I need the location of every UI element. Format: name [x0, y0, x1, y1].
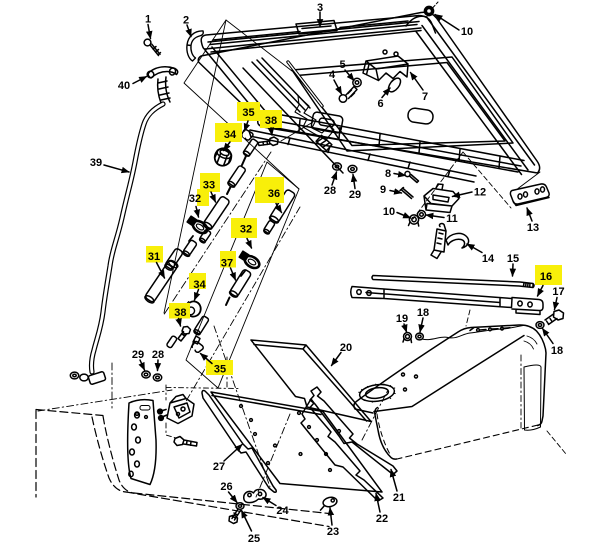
svg-text:36: 36 [268, 188, 280, 200]
svg-text:5: 5 [339, 59, 345, 71]
svg-text:8: 8 [385, 168, 391, 180]
svg-text:1: 1 [145, 14, 151, 26]
svg-text:11: 11 [446, 213, 458, 225]
svg-text:15: 15 [507, 253, 519, 265]
svg-text:22: 22 [376, 513, 388, 525]
svg-text:4: 4 [329, 69, 336, 81]
svg-text:7: 7 [422, 91, 428, 103]
svg-text:12: 12 [474, 187, 486, 199]
svg-text:13: 13 [527, 222, 539, 234]
svg-text:35: 35 [214, 364, 226, 376]
svg-text:17: 17 [552, 286, 564, 298]
svg-text:38: 38 [174, 307, 186, 319]
svg-text:35: 35 [242, 107, 254, 119]
svg-text:28: 28 [152, 349, 164, 361]
svg-text:32: 32 [240, 224, 252, 236]
svg-text:29: 29 [349, 189, 361, 201]
svg-text:23: 23 [327, 526, 339, 538]
svg-text:3: 3 [317, 2, 323, 14]
svg-text:10: 10 [461, 26, 473, 38]
svg-text:31: 31 [148, 251, 160, 263]
svg-text:29: 29 [132, 349, 144, 361]
svg-text:6: 6 [377, 98, 383, 110]
svg-text:10: 10 [383, 206, 395, 218]
svg-text:39: 39 [90, 157, 102, 169]
svg-text:21: 21 [393, 492, 405, 504]
svg-text:24: 24 [276, 505, 289, 517]
svg-text:26: 26 [220, 481, 232, 493]
svg-text:27: 27 [213, 461, 225, 473]
svg-text:18: 18 [417, 307, 429, 319]
svg-text:34: 34 [224, 129, 237, 141]
svg-text:18: 18 [551, 345, 563, 357]
svg-text:20: 20 [340, 342, 352, 354]
svg-text:37: 37 [221, 258, 233, 270]
svg-text:28: 28 [324, 185, 336, 197]
svg-text:32: 32 [189, 193, 201, 205]
svg-text:14: 14 [482, 253, 495, 265]
svg-text:19: 19 [396, 313, 408, 325]
svg-text:38: 38 [265, 115, 277, 127]
svg-text:25: 25 [248, 533, 260, 545]
svg-text:34: 34 [193, 279, 206, 291]
svg-text:33: 33 [203, 180, 215, 192]
svg-text:40: 40 [118, 80, 130, 92]
svg-text:2: 2 [183, 15, 189, 27]
svg-text:16: 16 [540, 271, 552, 283]
svg-text:9: 9 [380, 184, 386, 196]
